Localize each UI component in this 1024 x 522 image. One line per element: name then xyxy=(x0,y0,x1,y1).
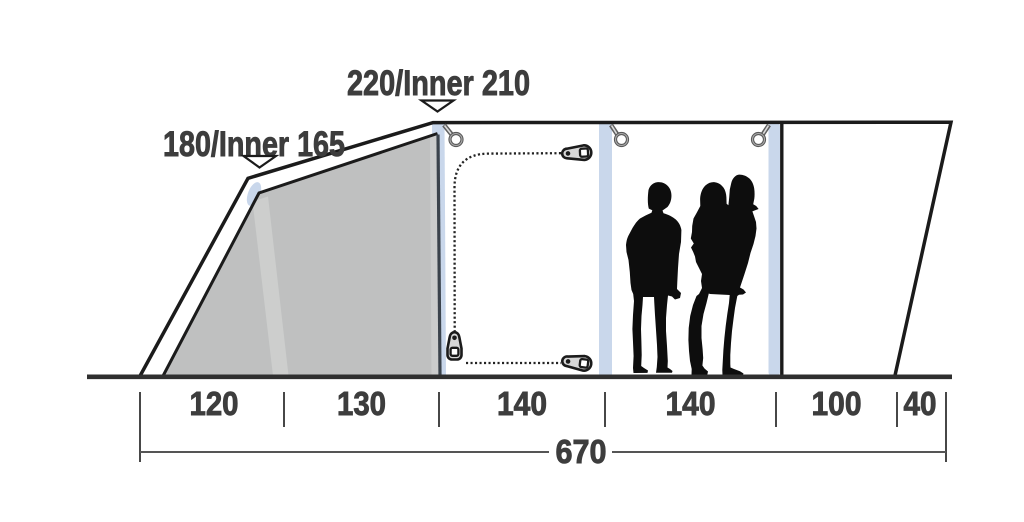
svg-text:140: 140 xyxy=(666,385,716,422)
svg-text:100: 100 xyxy=(812,385,862,422)
svg-text:220/Inner 210: 220/Inner 210 xyxy=(347,64,530,103)
svg-text:670: 670 xyxy=(556,433,607,470)
svg-text:140: 140 xyxy=(497,385,547,422)
svg-text:120: 120 xyxy=(190,385,239,422)
svg-text:40: 40 xyxy=(904,385,937,422)
svg-text:130: 130 xyxy=(337,385,386,422)
